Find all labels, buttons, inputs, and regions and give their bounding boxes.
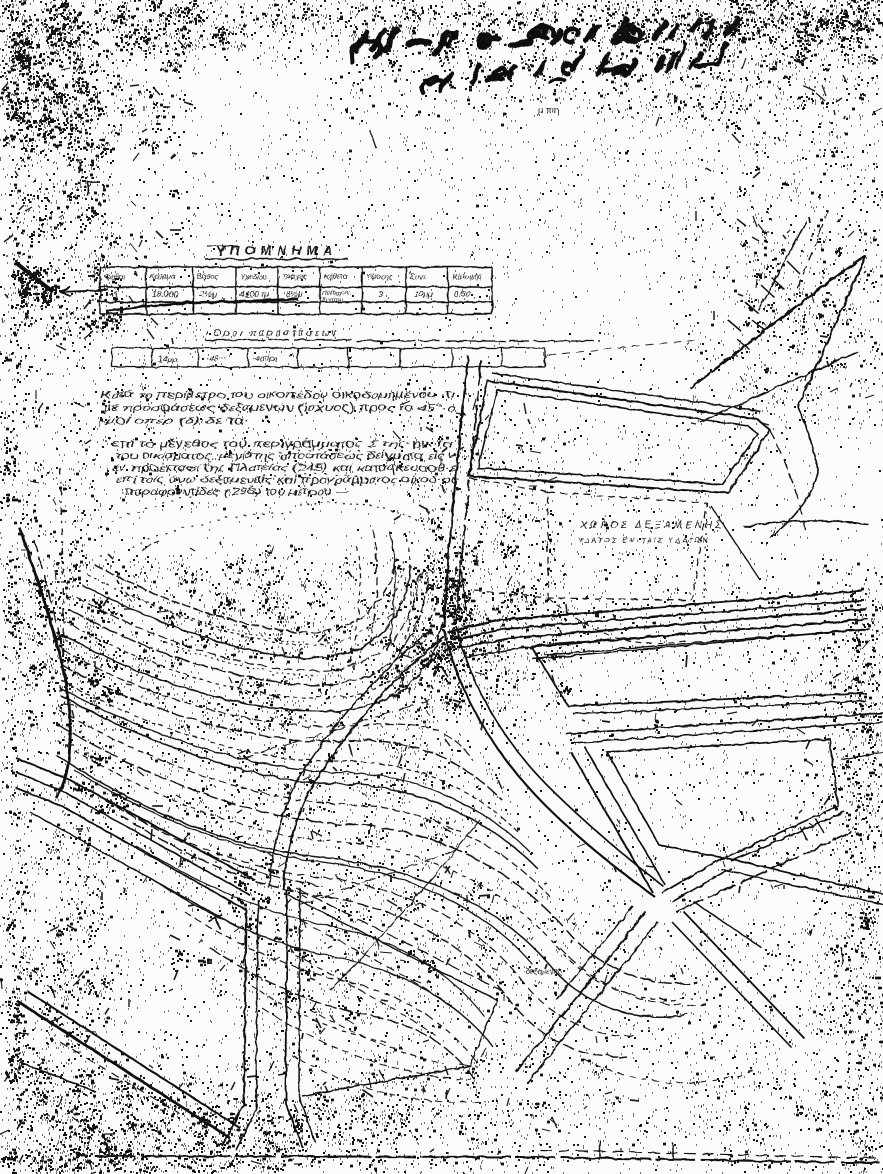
- svg-text:3: 3: [378, 289, 383, 299]
- svg-text:4200 τμ: 4200 τμ: [240, 289, 269, 299]
- svg-text:10μμ: 10μμ: [414, 289, 433, 299]
- svg-text:ΥΠΟΜΝΗΜΑ: ΥΠΟΜΝΗΜΑ: [216, 243, 338, 258]
- svg-text:Κάλυψης: Κάλυψης: [452, 272, 482, 281]
- svg-text:Συντ.: Συντ.: [409, 272, 427, 281]
- svg-text:Υψοςης: Υψοςης: [366, 272, 392, 281]
- svg-text:2½μ: 2½μ: [199, 289, 217, 299]
- svg-text:Κατά το περίμετρο του οικοπέδο: Κατά το περίμετρο του οικοπέδου οικοδομη…: [100, 389, 456, 401]
- svg-text:Κάθετα: Κάθετα: [324, 272, 348, 281]
- svg-text:Τράχυς: Τράχυς: [282, 272, 307, 281]
- svg-text:·παραφροντίδες (·298) του μέτρ: ·παραφροντίδες (·298) του μέτρου —: [120, 486, 351, 498]
- svg-text:·μοί οπερ (δ) δε τα·: ·μοί οπερ (δ) δε τα·: [100, 415, 250, 427]
- svg-text:Υχεδίου: Υχεδίου: [240, 272, 267, 281]
- svg-text:ΥΔΑΤΟΣ ΕΝ ΤΑΙΣ ΥΔΑΤΩΝ: ΥΔΑΤΟΣ ΕΝ ΤΑΙΣ ΥΔΑΤΩΝ: [578, 536, 710, 545]
- svg-text:μ πιη: μ πιη: [538, 105, 559, 115]
- svg-text:·4ατίρι: ·4ατίρι: [252, 353, 276, 363]
- svg-text:ΧΩΡΟΣ ΔΕΞΑΜΕΝΗΣ: ΧΩΡΟΣ ΔΕΞΑΜΕΝΗΣ: [579, 520, 724, 531]
- svg-text:8½μ: 8½μ: [286, 289, 303, 299]
- svg-text:επί τοίς άνω δεξαμεναίς καί πρ: επί τοίς άνω δεξαμεναίς καί προγράμματος…: [116, 474, 458, 486]
- svg-text:·48···: ·48···: [206, 353, 227, 363]
- svg-text:14μρ.: 14μρ.: [158, 354, 179, 364]
- svg-text:Πενταγων.: Πενταγων.: [322, 290, 352, 297]
- svg-text:Συστημ.: Συστημ.: [321, 297, 345, 304]
